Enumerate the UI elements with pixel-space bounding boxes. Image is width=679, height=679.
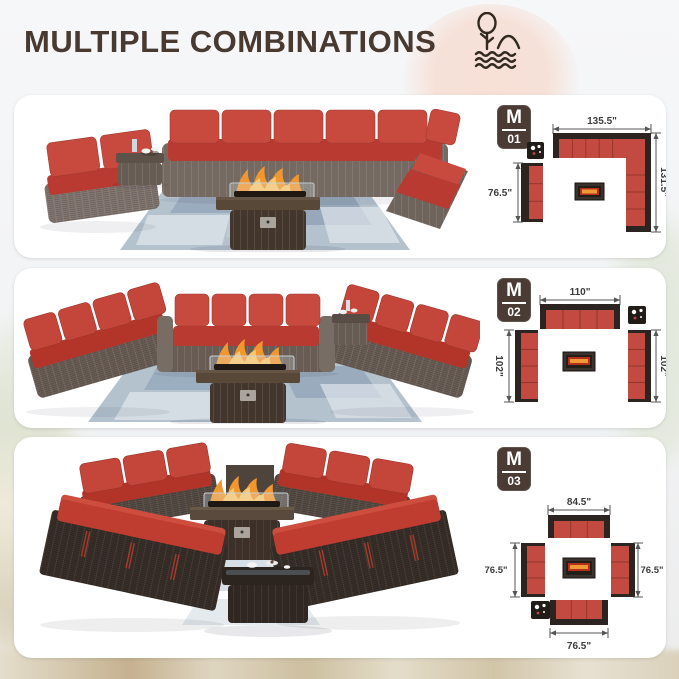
combination-panel-m01: M 01 135.5" [14, 95, 666, 258]
dim-top: 135.5" [553, 116, 651, 134]
fire-pit-topview [575, 183, 604, 200]
side-table-topview [527, 142, 544, 159]
fire-pit-topview [563, 558, 595, 578]
cup [151, 147, 159, 151]
page-title: MULTIPLE COMBINATIONS [24, 24, 436, 60]
cup [339, 310, 347, 314]
side-table-topview [531, 601, 550, 619]
dim-right: 102" [651, 330, 666, 402]
dim-top-label: 110" [570, 287, 591, 298]
combination-panel-m03: M 03 84.5" [14, 437, 666, 658]
bottom-sofa-topview [550, 600, 608, 625]
lake-tree-icon [472, 12, 524, 70]
dim-left-label: 102" [493, 355, 504, 377]
bottle [346, 300, 350, 311]
combination-panel-m02: M 02 110" [14, 268, 666, 428]
dim-left-label: 76.5" [485, 565, 508, 576]
left-sofa-topview [515, 330, 538, 402]
furniture-photo-m03 [20, 441, 480, 654]
cup [142, 149, 151, 154]
furniture-photo-m02 [20, 272, 480, 424]
dim-left-label: 76.5" [488, 188, 512, 199]
dimension-diagram-m02: 110" [476, 268, 666, 428]
dim-bottom-label: 76.5" [567, 641, 591, 652]
dim-right-label: 131.5" [658, 167, 666, 197]
dim-top: 110" [540, 287, 620, 305]
product-infographic: MULTIPLE COMBINATIONS [0, 0, 679, 679]
dim-top: 84.5" [548, 497, 610, 515]
dim-right-label: 76.5" [641, 565, 664, 576]
dim-left: 76.5" [488, 163, 523, 222]
dim-top-label: 84.5" [567, 497, 591, 508]
furniture-photo-m01 [20, 97, 480, 252]
fire-pit-topview [563, 352, 595, 371]
cup [284, 565, 290, 569]
top-sofa-topview [540, 304, 620, 329]
right-sofa-topview [628, 330, 651, 402]
cup [351, 309, 358, 313]
top-sofa-topview [548, 515, 610, 538]
dimension-diagram-m03: 84.5" [476, 437, 666, 658]
dim-bottom: 76.5" [550, 628, 608, 652]
bottle [132, 139, 137, 152]
dim-top-label: 135.5" [587, 116, 617, 127]
dimension-diagram-m01: 135.5" [476, 95, 666, 258]
cup [247, 562, 257, 568]
loveseat-topview [521, 163, 543, 222]
dim-right-label: 102" [658, 355, 666, 377]
dim-right: 131.5" [651, 133, 666, 232]
side-table-topview [628, 306, 646, 324]
dim-right: 76.5" [633, 543, 664, 597]
right-sofa-topview [611, 543, 635, 597]
dim-left: 102" [493, 330, 514, 402]
left-sofa-topview [521, 543, 545, 597]
dim-left: 76.5" [485, 543, 521, 597]
